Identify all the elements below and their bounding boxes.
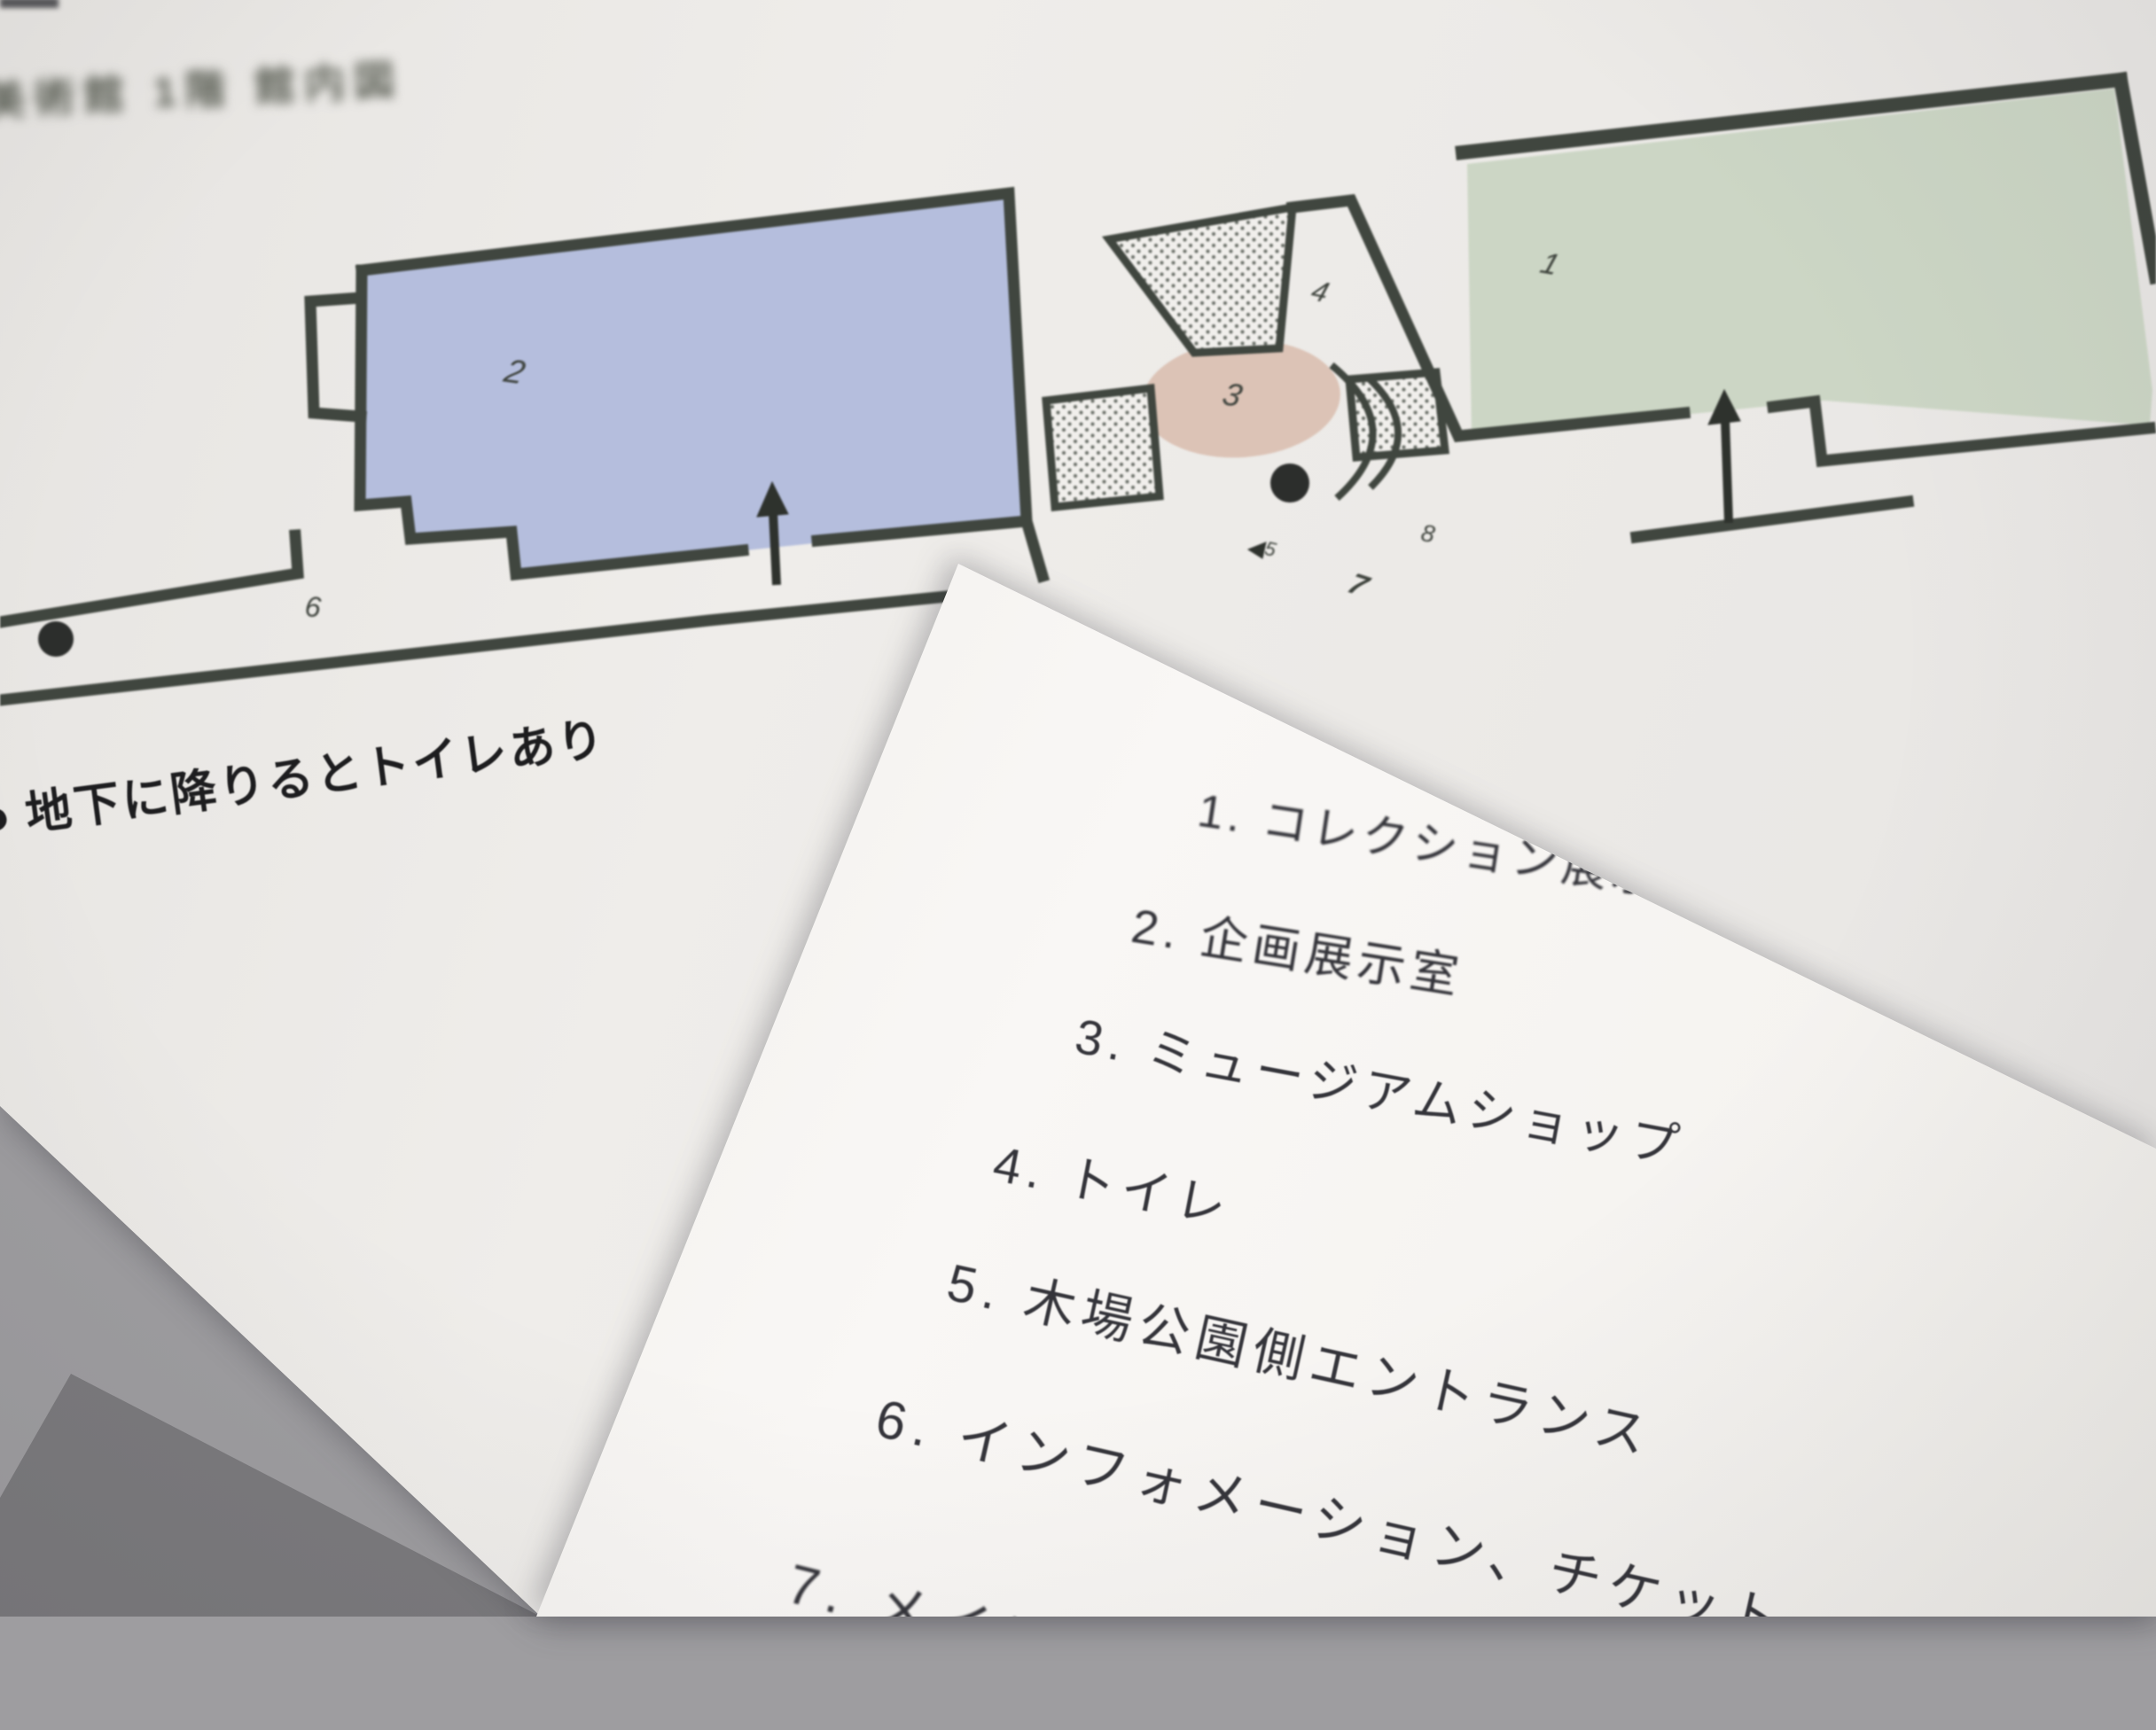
legend-item-2: 2. 企画展示室 <box>1128 886 1470 1008</box>
legend-item-7: 7. メインエント <box>780 1539 1256 1730</box>
legend-item-1: 1. コレクション展示室 <box>1194 773 1717 916</box>
legend-sheet-wrapper: 1. コレクション展示室 2. 企画展示室 3. ミュージアムショップ 4. ト… <box>0 0 2156 1617</box>
legend-sheet: 1. コレクション展示室 2. 企画展示室 3. ミュージアムショップ 4. ト… <box>0 0 2156 1617</box>
legend-item-3: 3. ミュージアムショップ <box>1070 996 1691 1179</box>
legend-item-4: 4. トイレ <box>988 1124 1239 1240</box>
photo-of-tactile-museum-floor-map: { "map_sheet": { "title": "美術館 1階 館内図", … <box>0 0 2156 1617</box>
